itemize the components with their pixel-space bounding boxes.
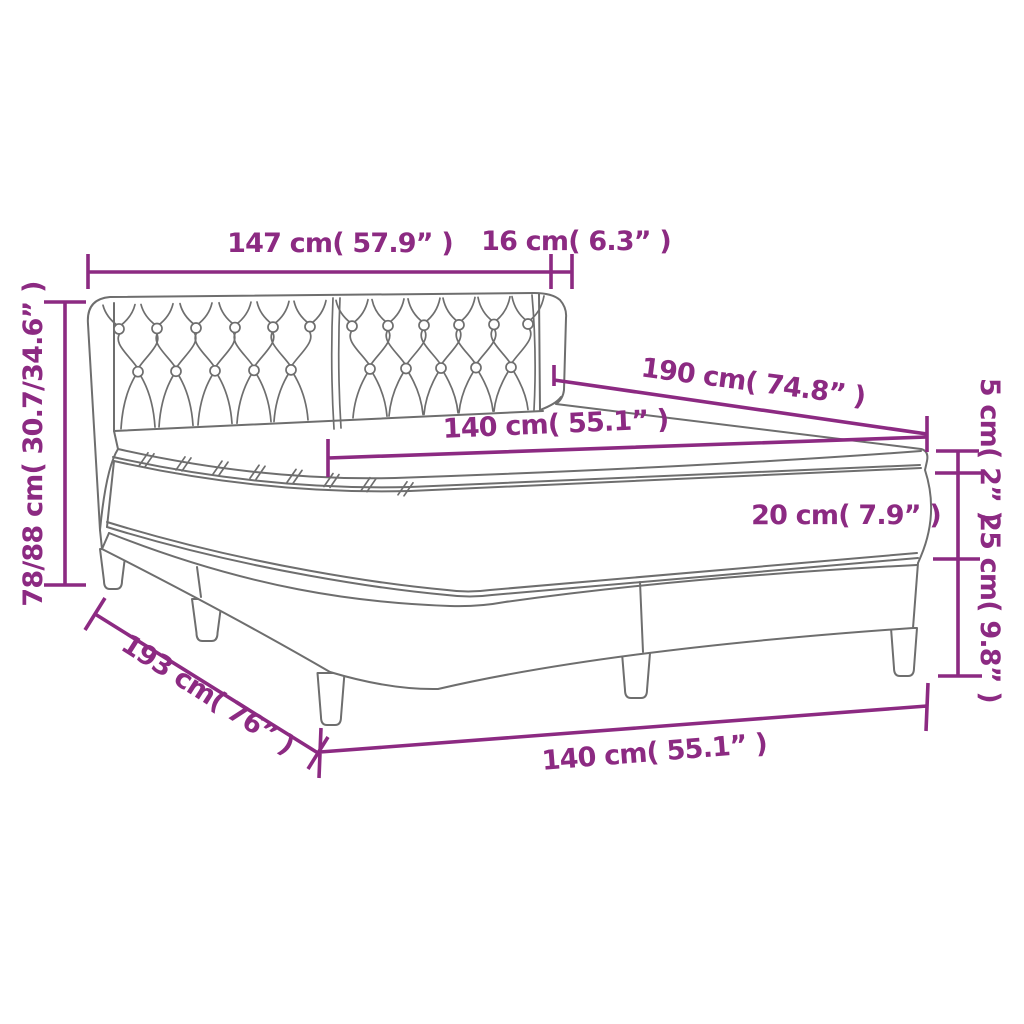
diagram-canvas: 147 cm( 57.9” ) 16 cm( 6.3” ) 78/88 cm( …: [0, 0, 1024, 1024]
tuft-button: [436, 363, 446, 373]
tuft-button: [133, 367, 143, 377]
tuft-button: [365, 364, 375, 374]
tuft-button: [286, 365, 296, 375]
tuft-button: [506, 362, 516, 372]
tuft-button: [191, 323, 201, 333]
mattress-height-label: 20 cm( 7.9” ): [751, 500, 941, 531]
tuft-button: [268, 322, 278, 332]
tuft-button: [383, 321, 393, 331]
tuft-button: [305, 322, 315, 332]
base-height-label: 25 cm( 9.8” ): [974, 513, 1005, 703]
tuft-button: [171, 366, 181, 376]
dim-total-height-line: [44, 302, 86, 585]
topper-height-label: 5 cm( 2” ): [974, 378, 1005, 522]
bed-leg: [622, 653, 650, 698]
dim-headboard-width-line: [88, 254, 572, 289]
tuft-button: [523, 319, 533, 329]
bed-leg: [318, 673, 345, 725]
bed-dimension-diagram: 147 cm( 57.9” ) 16 cm( 6.3” ) 78/88 cm( …: [0, 0, 1024, 1024]
total-height-label: 78/88 cm( 30.7/34.6” ): [18, 281, 49, 606]
tuft-button: [249, 365, 259, 375]
bed-leg: [891, 628, 917, 676]
dim-total-height: 78/88 cm( 30.7/34.6” ): [18, 281, 86, 606]
tuft-button: [152, 323, 162, 333]
length-bottom-label: 193 cm( 76” ): [116, 628, 300, 761]
tuft-button: [471, 363, 481, 373]
length-top-label: 190 cm( 74.8” ): [639, 352, 867, 412]
tuft-button: [210, 366, 220, 376]
tuft-button: [230, 323, 240, 333]
headboard-width-label: 147 cm( 57.9” ): [227, 228, 453, 259]
dim-width-bottom: 140 cm( 55.1” ): [319, 683, 928, 778]
dim-headboard-width: 147 cm( 57.9” ) 16 cm( 6.3” ): [88, 226, 671, 289]
headboard-right-edge: [539, 294, 540, 410]
tuft-button: [419, 320, 429, 330]
tuft-button: [347, 321, 357, 331]
headboard-depth-label: 16 cm( 6.3” ): [481, 226, 671, 257]
tuft-button: [454, 320, 464, 330]
width-bottom-label: 140 cm( 55.1” ): [541, 728, 768, 777]
tuft-button: [489, 319, 499, 329]
tuft-button: [114, 324, 124, 334]
tuft-button: [401, 363, 411, 373]
